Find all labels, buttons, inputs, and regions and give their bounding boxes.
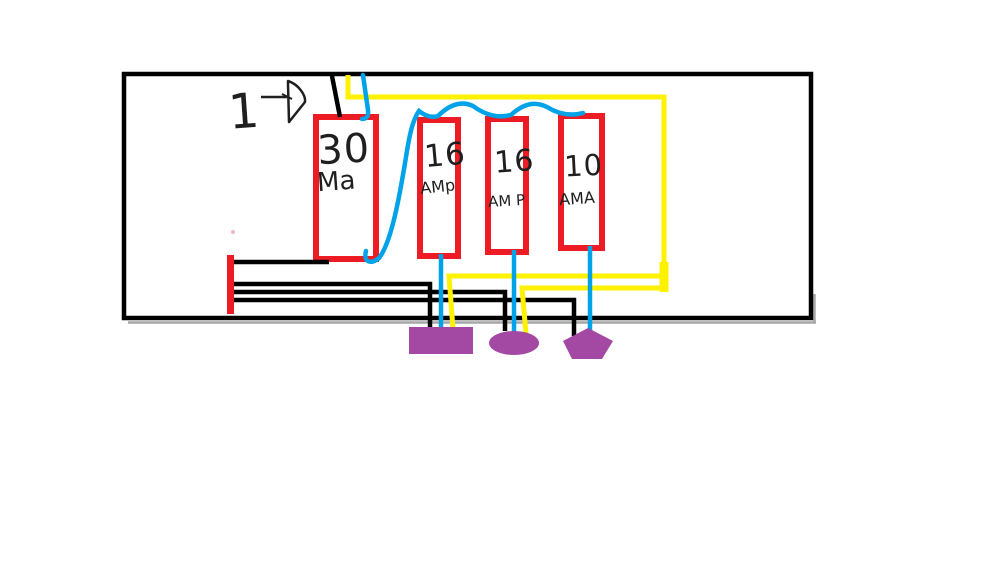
load-ellipse [489,331,539,355]
breaker-1-unit: Ma [316,166,356,199]
bus-bar [227,255,234,314]
paint-speck [231,230,235,234]
breaker-2-unit: AMp [419,175,456,198]
load-rectangle [409,327,473,354]
breaker-3-box [488,119,526,252]
breaker-2-rating: 16 [423,136,467,175]
wiring-diagram: 30 Ma 16 AMp 16 AM P 10 AMA 1 [0,0,1000,563]
breaker-3-unit: AM P [488,191,526,211]
breaker-4-rating: 10 [563,148,604,184]
load-pentagon [563,328,613,359]
yellow-wire-to-load-ellipse [522,288,664,334]
black-supply-feed-wire [332,76,340,117]
yellow-wire-to-load-rectangle [449,276,664,329]
arrow-right-head-icon [288,81,305,122]
annotation-number: 1 [227,83,261,141]
blue-jumper-wire-breakers [365,104,583,262]
breaker-4-unit: AMA [558,188,595,209]
paint-canvas: 30 Ma 16 AMp 16 AM P 10 AMA 1 [0,0,1000,563]
breaker-3-rating: 16 [493,143,536,181]
